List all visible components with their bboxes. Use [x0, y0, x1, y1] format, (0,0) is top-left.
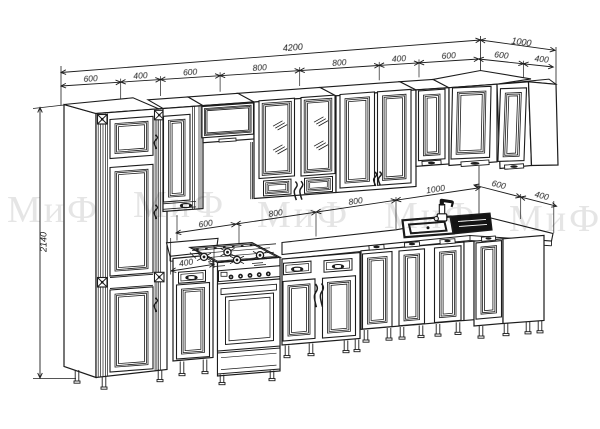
svg-text:400: 400 [392, 53, 407, 64]
svg-text:МиФ: МиФ [384, 195, 477, 237]
svg-text:МиФ: МиФ [133, 184, 226, 226]
svg-text:600: 600 [83, 73, 98, 84]
svg-text:400: 400 [534, 53, 549, 64]
svg-text:2140: 2140 [39, 232, 49, 253]
svg-text:800: 800 [332, 57, 347, 68]
svg-text:МиФ: МиФ [509, 198, 600, 240]
svg-text:600: 600 [441, 50, 456, 61]
svg-text:МиФ: МиФ [257, 194, 350, 236]
svg-text:МиФ: МиФ [7, 189, 100, 231]
svg-text:800: 800 [348, 195, 364, 207]
svg-text:800: 800 [252, 62, 267, 73]
svg-text:4200: 4200 [282, 42, 303, 54]
svg-text:400: 400 [133, 70, 148, 81]
svg-text:600: 600 [494, 49, 509, 60]
svg-text:600: 600 [183, 67, 198, 78]
